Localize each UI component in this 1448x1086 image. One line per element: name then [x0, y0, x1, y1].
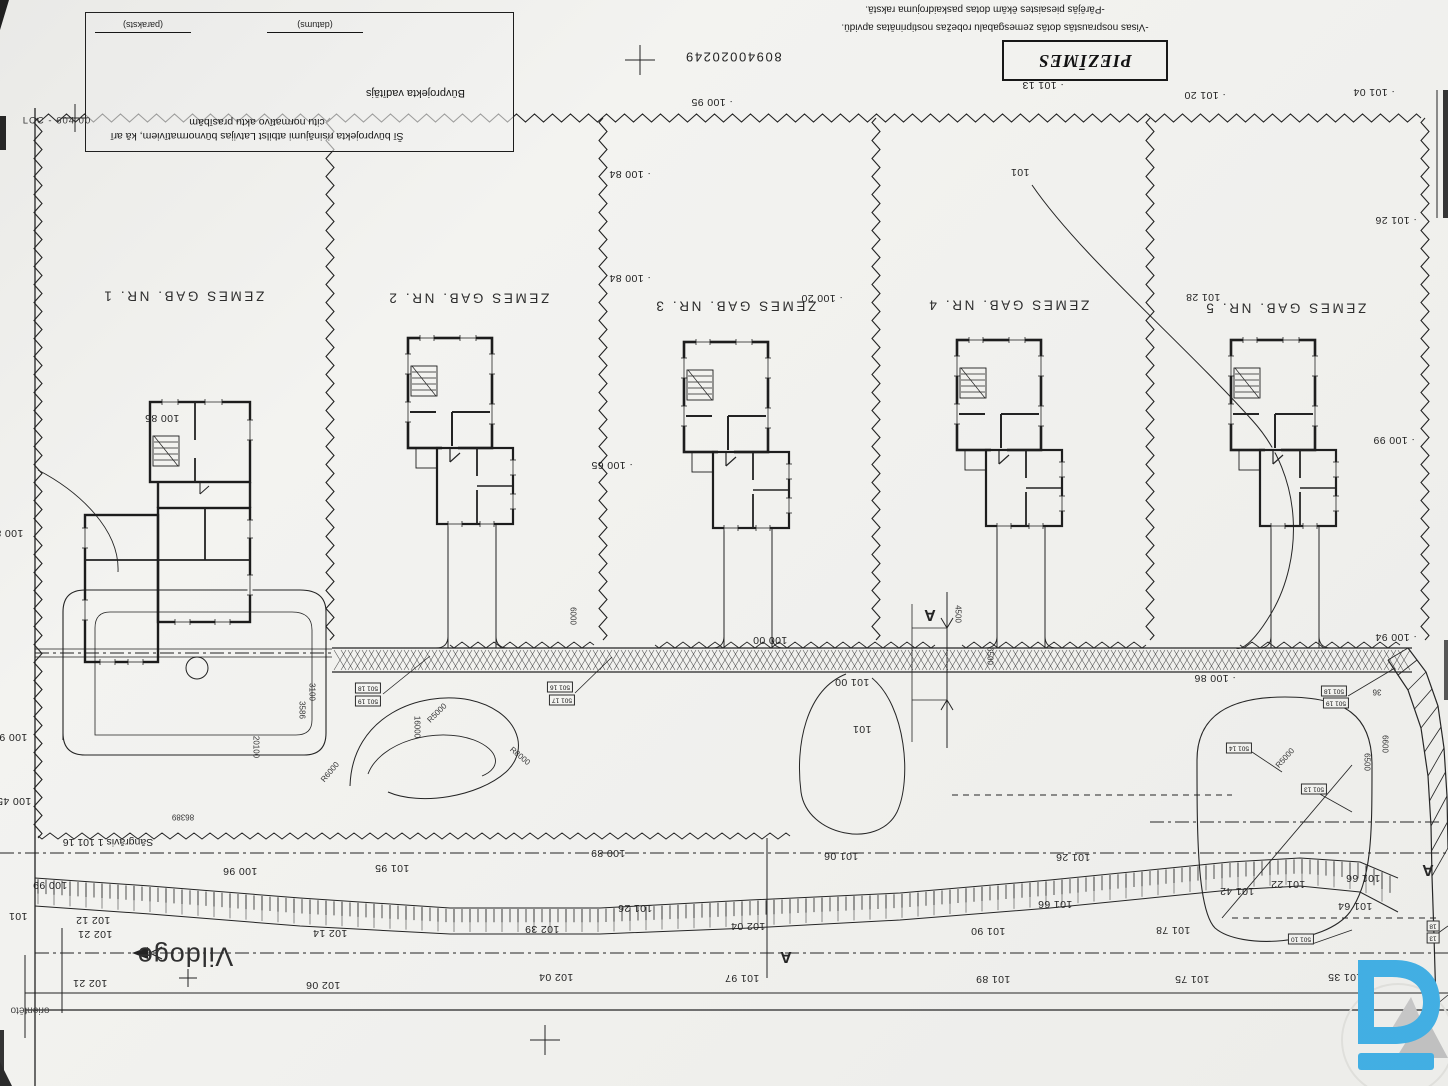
elevation-label: · 100 84 — [609, 272, 651, 284]
declaration-line1: Šī būvprojekta risinājumi atbilst Latvij… — [111, 130, 404, 142]
elevation-label: · 100 94 — [1375, 631, 1417, 643]
elevation-label: · 100 86 — [1194, 672, 1236, 684]
point-tag: 501 18 — [1321, 686, 1347, 697]
elevation-label: 102 04 — [539, 971, 574, 983]
dimension-label: 20100 — [252, 736, 261, 758]
elevation-label: · 100 20 — [801, 292, 843, 304]
elevation-label: 101 — [1011, 166, 1030, 178]
section-mark: A — [1422, 860, 1434, 878]
date-signature-field: (datums) — [267, 20, 363, 47]
note-line: -Visas nospraustās dotās zemesgabalu rob… — [841, 22, 1148, 33]
plan-linework — [0, 0, 1448, 1086]
dimension-label: 16000 — [413, 716, 422, 738]
elevation-label: 100 45 — [0, 795, 31, 807]
point-tag: 501 19 — [355, 696, 381, 707]
signature-line — [95, 32, 191, 47]
notes-box: PIEZĪMES — [1002, 40, 1168, 81]
dimension-label: 3586 — [298, 701, 307, 719]
elevation-label: 101 26 — [618, 902, 653, 914]
declaration-line2: citu normatīvo aktu prasībām — [189, 116, 324, 128]
elevation-label: 100 96 — [223, 865, 258, 877]
edge-text-fragment: orientēto — [11, 1005, 50, 1016]
point-tag: 501 17 — [549, 695, 575, 706]
elevation-label: · 100 84 — [609, 168, 651, 180]
elevation-label: 102 06 — [306, 979, 341, 991]
date-caption: (datums) — [267, 20, 363, 30]
elevation-label: 101 — [853, 723, 872, 735]
elevation-label: 102 14 — [313, 927, 348, 939]
plot-label: ZEMES GAB. NR. 5 — [1204, 301, 1366, 316]
point-tag: 501 19 — [1323, 698, 1349, 709]
title-block-content: Šī būvprojekta risinājumi atbilst Latvij… — [86, 13, 513, 151]
elevation-label: 101 06 — [824, 850, 859, 862]
point-tag: 501 16 — [547, 682, 573, 693]
elevation-label: 101 78 — [1156, 924, 1191, 936]
elevation-label: 101 28 — [1186, 291, 1221, 303]
note-line: -Pārējās piesaistes ēkām dotas paskaidro… — [865, 4, 1105, 15]
elevation-label: · 100 99 — [1373, 434, 1415, 446]
elevation-label: 101 42 — [1220, 885, 1255, 897]
elevation-label: 101 64 — [1338, 900, 1373, 912]
elevation-label: 101 95 — [375, 862, 410, 874]
plot-label: ZEMES GAB. NR. 1 — [102, 289, 264, 304]
elevation-label: 100 99 — [33, 879, 68, 891]
point-tag: 13 — [1426, 933, 1439, 944]
dimension-label: 6500 — [1363, 753, 1372, 771]
elevation-label: 100 85 — [145, 412, 180, 424]
grid-coordinate-label: LCC - 604 00 — [23, 116, 92, 127]
point-tag: 18 — [1426, 921, 1439, 932]
elevation-label: 101 97 — [725, 972, 760, 984]
elevation-label: 102 12 — [76, 914, 111, 926]
section-mark: A — [924, 605, 936, 623]
title-block: Šī būvprojekta risinājumi atbilst Latvij… — [85, 12, 514, 152]
dimension-label: 4500 — [954, 605, 963, 623]
elevation-label: 101 00 — [835, 676, 870, 688]
elevation-label: · 101 20 — [1184, 89, 1226, 101]
signature-caption: (paraksts) — [95, 20, 191, 30]
dimension-label: 3100 — [308, 683, 317, 701]
plot-label: ZEMES GAB. NR. 2 — [387, 291, 549, 306]
elevation-label: · 101 04 — [1353, 86, 1395, 98]
project-manager-label: Būvprojekta vadītājs — [366, 87, 465, 99]
plot-label: ZEMES GAB. NR. 3 — [654, 299, 816, 314]
elevation-label: 102 21 — [78, 928, 113, 940]
dimension-label: 36 — [1373, 688, 1382, 697]
elevation-label: 102 39 — [525, 923, 560, 935]
elevation-label: 100 81 — [0, 527, 23, 539]
elevation-label: 101 66 — [1038, 898, 1073, 910]
river-name-label: Vildoge — [137, 941, 234, 972]
notes-box-title: PIEZĪMES — [1038, 50, 1132, 71]
ditch-label: Sāngrāvis 1 101 16 — [63, 836, 153, 848]
elevation-label: 102 04 — [731, 920, 766, 932]
elevation-label: 101 66 — [1346, 872, 1381, 884]
signature-field: (paraksts) — [95, 20, 191, 47]
elevation-label: 102 21 — [73, 977, 108, 989]
elevation-label: · 100 65 — [591, 459, 633, 471]
plot-label: ZEMES GAB. NR. 4 — [927, 298, 1089, 313]
elevation-label: 101 26 — [1056, 851, 1091, 863]
point-tag: 501 18 — [355, 683, 381, 694]
point-tag: 501 14 — [1226, 743, 1252, 754]
elevation-label: 101 35 — [1328, 971, 1363, 983]
dimension-label: 6000 — [569, 607, 578, 625]
dimension-label: 86389 — [172, 813, 194, 822]
elevation-label: 101 — [9, 910, 28, 922]
elevation-label: · 101 13 — [1022, 79, 1064, 91]
elevation-label: 101 90 — [971, 925, 1006, 937]
point-tag: 501 10 — [1288, 934, 1314, 945]
point-tag: 501 13 — [1301, 784, 1327, 795]
elevation-label: 100 89 — [591, 847, 626, 859]
elevation-label: 101 22 — [1271, 878, 1306, 890]
section-mark: A — [780, 947, 792, 965]
dimension-label: 6500 — [986, 647, 995, 665]
dimension-label: 6600 — [1381, 735, 1390, 753]
elevation-label: · 101 26 — [1375, 214, 1417, 226]
date-line — [267, 32, 363, 47]
elevation-label: 101 89 — [976, 973, 1011, 985]
declaration-text: Šī būvprojekta risinājumi atbilst Latvij… — [89, 115, 425, 143]
elevation-label: 100 91 — [0, 731, 27, 743]
elevation-label: 100 00 — [753, 634, 788, 646]
elevation-label: 101 75 — [1175, 973, 1210, 985]
elevation-label: · 100 95 — [691, 96, 733, 108]
cadastre-number: 80940020249 — [684, 50, 781, 65]
site-plan-sheet: Šī būvprojekta risinājumi atbilst Latvij… — [0, 0, 1448, 1086]
